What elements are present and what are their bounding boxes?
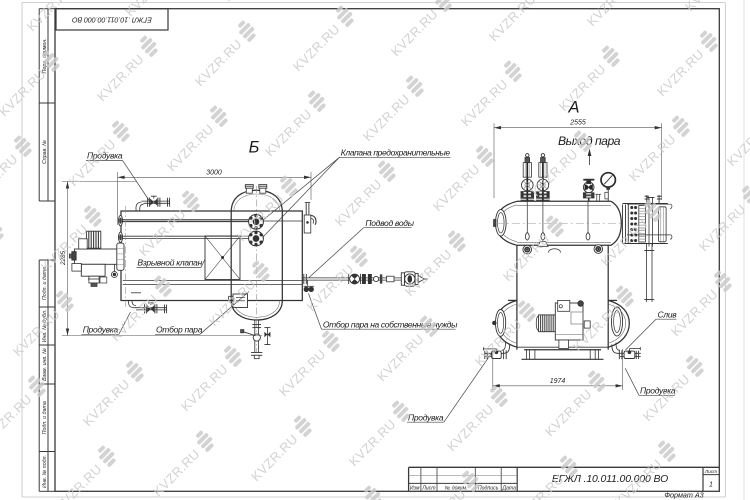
svg-text:Инв. № подл.: Инв. № подл.	[42, 455, 48, 488]
svg-text:Клапана предохранительные: Клапана предохранительные	[341, 148, 451, 158]
svg-text:Слив: Слив	[658, 309, 678, 319]
svg-text:3000: 3000	[206, 169, 222, 176]
svg-text:Подвод воды: Подвод воды	[365, 218, 414, 228]
svg-text:Б: Б	[249, 139, 260, 157]
svg-text:ЕГЖЛ .10.011.00.000 ВО: ЕГЖЛ .10.011.00.000 ВО	[72, 16, 152, 25]
svg-text:1: 1	[709, 481, 713, 488]
svg-text:Формат А3: Формат А3	[664, 490, 703, 499]
svg-text:Справ. №: Справ. №	[42, 140, 48, 164]
svg-text:Продувка: Продувка	[408, 412, 444, 422]
svg-text:Дата: Дата	[501, 485, 516, 491]
svg-text:Подпись: Подпись	[478, 485, 499, 491]
svg-text:1974: 1974	[550, 378, 566, 385]
svg-text:Изм: Изм	[410, 485, 420, 491]
svg-text:Взрывной клапан: Взрывной клапан	[137, 258, 202, 268]
svg-text:Подп. и дата: Подп. и дата	[42, 401, 48, 434]
svg-text:Отбор пара: Отбор пара	[156, 325, 203, 335]
svg-text:Взам. инв. №: Взам. инв. №	[42, 348, 48, 381]
svg-text:2555: 2555	[569, 120, 586, 127]
svg-text:Лист: Лист	[704, 469, 717, 475]
svg-text:Лист: Лист	[421, 485, 436, 491]
svg-text:Отбор пара на собственные нужд: Отбор пара на собственные нужды	[323, 319, 458, 329]
